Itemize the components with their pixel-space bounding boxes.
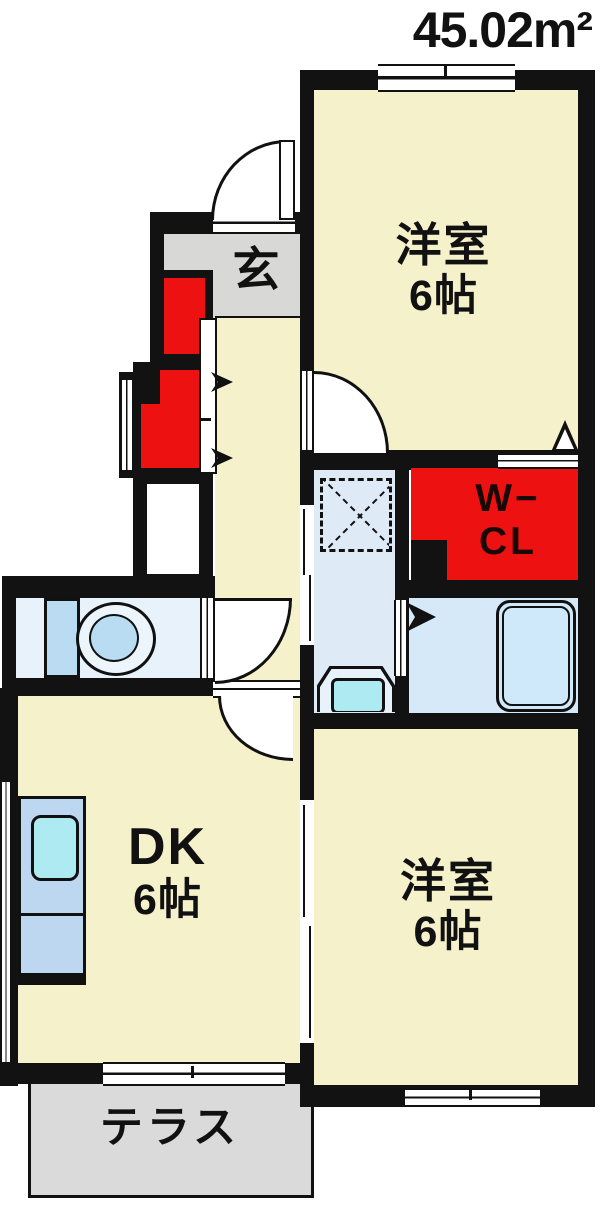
window-dk-left [0, 782, 12, 1062]
dk-name: DK [100, 818, 235, 876]
sliding-door-dk-room2 [300, 800, 314, 1043]
dk-size: 6帖 [100, 876, 235, 924]
area-title: 45.02m² [320, 2, 592, 62]
kitchen-sink [31, 815, 79, 881]
closet2-red-lower [141, 404, 205, 468]
toilet-tank [44, 598, 80, 678]
window-dk-terrace [103, 1062, 285, 1086]
dk-label: DK 6帖 [100, 818, 235, 924]
washbasin [317, 666, 395, 712]
entrance-door-leaf [279, 140, 295, 220]
kitchen-counter [18, 796, 86, 985]
niche-inner [147, 484, 199, 574]
toilet-door-gap [200, 598, 215, 678]
room1-door-gap [300, 371, 314, 450]
sliding-door-washroom [300, 505, 314, 645]
washing-machine-area [320, 478, 392, 552]
room1-name: 洋室 [356, 220, 531, 272]
room2-name: 洋室 [358, 856, 538, 908]
entrance-door-arc [211, 140, 287, 220]
window-room1-top [378, 64, 515, 92]
room2-size: 6帖 [358, 908, 538, 956]
entrance-label: 玄 [226, 244, 286, 297]
wcl-label: W− CL [448, 478, 568, 564]
wcl-line1: W− [448, 478, 568, 521]
terrace-label: テラス [70, 1104, 270, 1152]
window-slit-wcl-top [498, 453, 578, 469]
toilet-bowl [76, 602, 156, 676]
wall-mid-horizontal [300, 713, 594, 729]
window-room2-bottom [405, 1088, 540, 1107]
room1-size: 6帖 [356, 272, 531, 320]
wcl-notch [411, 540, 447, 580]
wcl-line2: CL [448, 521, 568, 564]
wall-washroom-right [393, 456, 409, 740]
room1-label: 洋室 6帖 [356, 220, 531, 320]
floor-plan: 45.02m² 洋室 6帖 玄 W− CL DK 6帖 洋室 6帖 テラス [0, 0, 606, 1214]
wall-wcl-bottom [398, 580, 594, 598]
bathroom-door-gap [394, 600, 408, 676]
window-left-closet [120, 380, 134, 470]
room2-label: 洋室 6帖 [358, 856, 538, 956]
bathtub [496, 600, 576, 712]
